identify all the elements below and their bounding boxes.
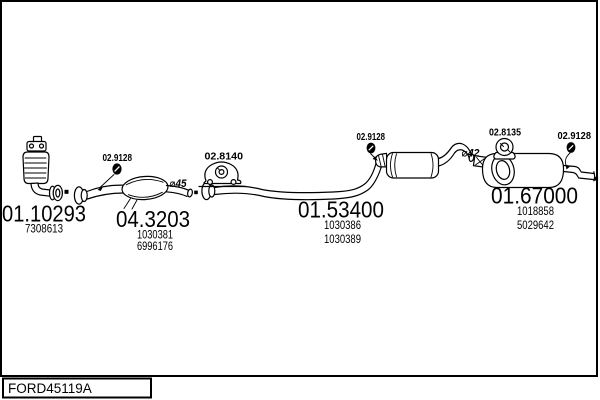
accessory-label-hanger-centre: 02.8140 — [205, 151, 244, 163]
catalog-code-box: FORD45119A — [3, 379, 151, 398]
accessory-label-clamp-middle: 02.9128 — [357, 131, 386, 143]
accessory-label-clamp-left: 02.9128 — [103, 152, 133, 164]
pipe-diameter-42-label: ⌀42 — [462, 148, 480, 160]
pipe-diameter-45-label: ⌀45 — [170, 178, 188, 190]
oe-number: 1030389 — [324, 232, 361, 246]
accessory-label-clamp-rear: 02.9128 — [558, 130, 592, 142]
exhaust-parts-diagram: 02.9128 02.8140 02.9128 02.8135 02.9128 … — [0, 0, 600, 400]
joint-dot — [194, 191, 198, 195]
oe-number: 6996176 — [137, 239, 173, 253]
joint-dot — [594, 177, 598, 181]
catalog-code: FORD45119A — [8, 381, 92, 396]
oe-number: 1030386 — [324, 218, 361, 232]
diagram-canvas: 02.9128 02.8140 02.9128 02.8135 02.9128 … — [0, 0, 600, 400]
joint-dot — [65, 190, 69, 194]
oe-number: 5029642 — [517, 218, 554, 232]
oe-number: 7308613 — [25, 222, 63, 236]
oe-number: 1018858 — [517, 204, 554, 218]
accessory-label-hanger-rear: 02.8135 — [489, 127, 521, 139]
